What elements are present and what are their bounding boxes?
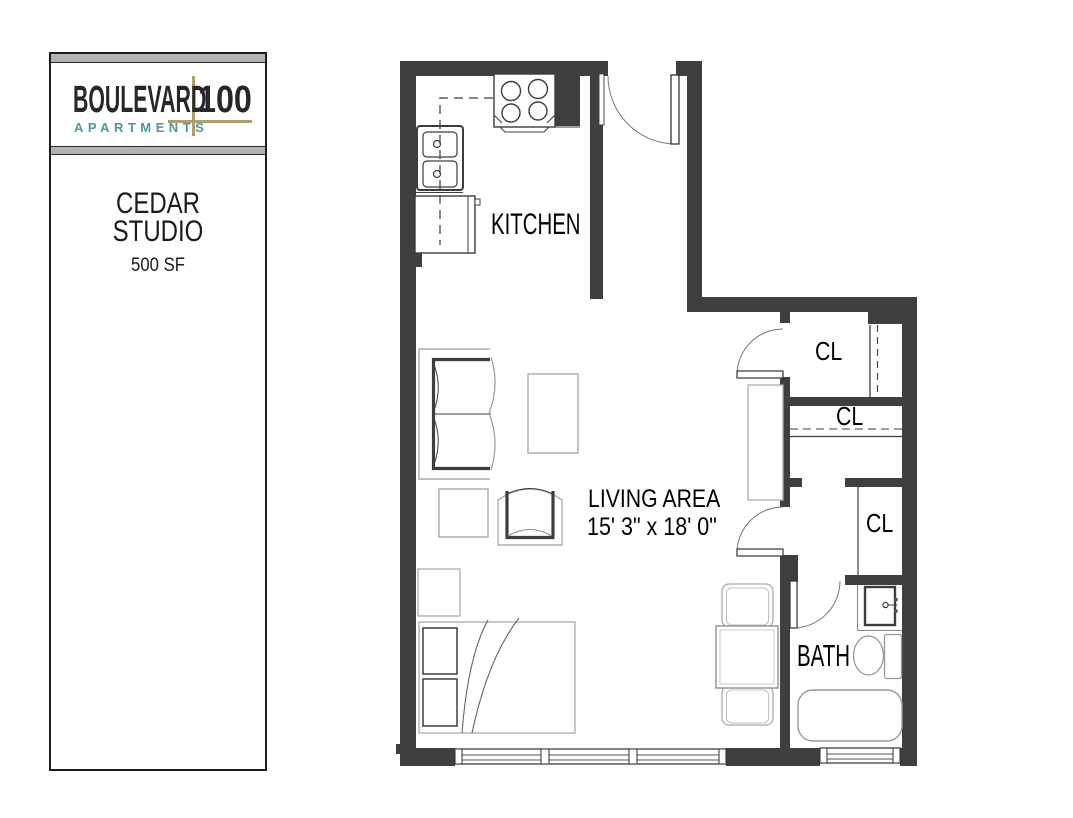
toilet xyxy=(854,635,902,679)
bath-sink xyxy=(865,587,898,625)
closet1-label: CL xyxy=(815,338,842,364)
coffee-table xyxy=(528,374,578,453)
kitchen-label: KITCHEN xyxy=(491,210,581,240)
living-dimensions-label: 15' 3" x 18' 0" xyxy=(587,515,717,540)
floorplan-page: BOULEVARD 100 APARTMENTS CEDAR STUDIO 50… xyxy=(0,0,1073,818)
closet3-label: CL xyxy=(866,510,893,536)
bath-window xyxy=(820,748,900,763)
hall-door xyxy=(737,507,783,556)
living-area-label: LIVING AREA xyxy=(588,487,720,512)
refrigerator xyxy=(415,196,480,253)
entry-door xyxy=(599,74,679,144)
side-table xyxy=(439,489,488,537)
bathtub xyxy=(798,690,902,741)
stove xyxy=(494,74,555,132)
wardrobe xyxy=(748,385,783,500)
night-table xyxy=(418,569,460,616)
floorplan-drawing xyxy=(0,0,1073,818)
dining-table xyxy=(716,626,778,688)
doors xyxy=(599,74,840,628)
living-window xyxy=(455,749,726,764)
bath-label: BATH xyxy=(797,640,850,671)
bath-door xyxy=(790,581,840,628)
furniture xyxy=(418,349,783,733)
bed xyxy=(419,618,575,733)
closet1-door xyxy=(737,329,783,378)
sofa xyxy=(419,349,495,479)
armchair xyxy=(498,489,562,546)
windows xyxy=(455,748,900,764)
closet2-label: CL xyxy=(836,403,863,429)
dining-set xyxy=(716,584,778,725)
